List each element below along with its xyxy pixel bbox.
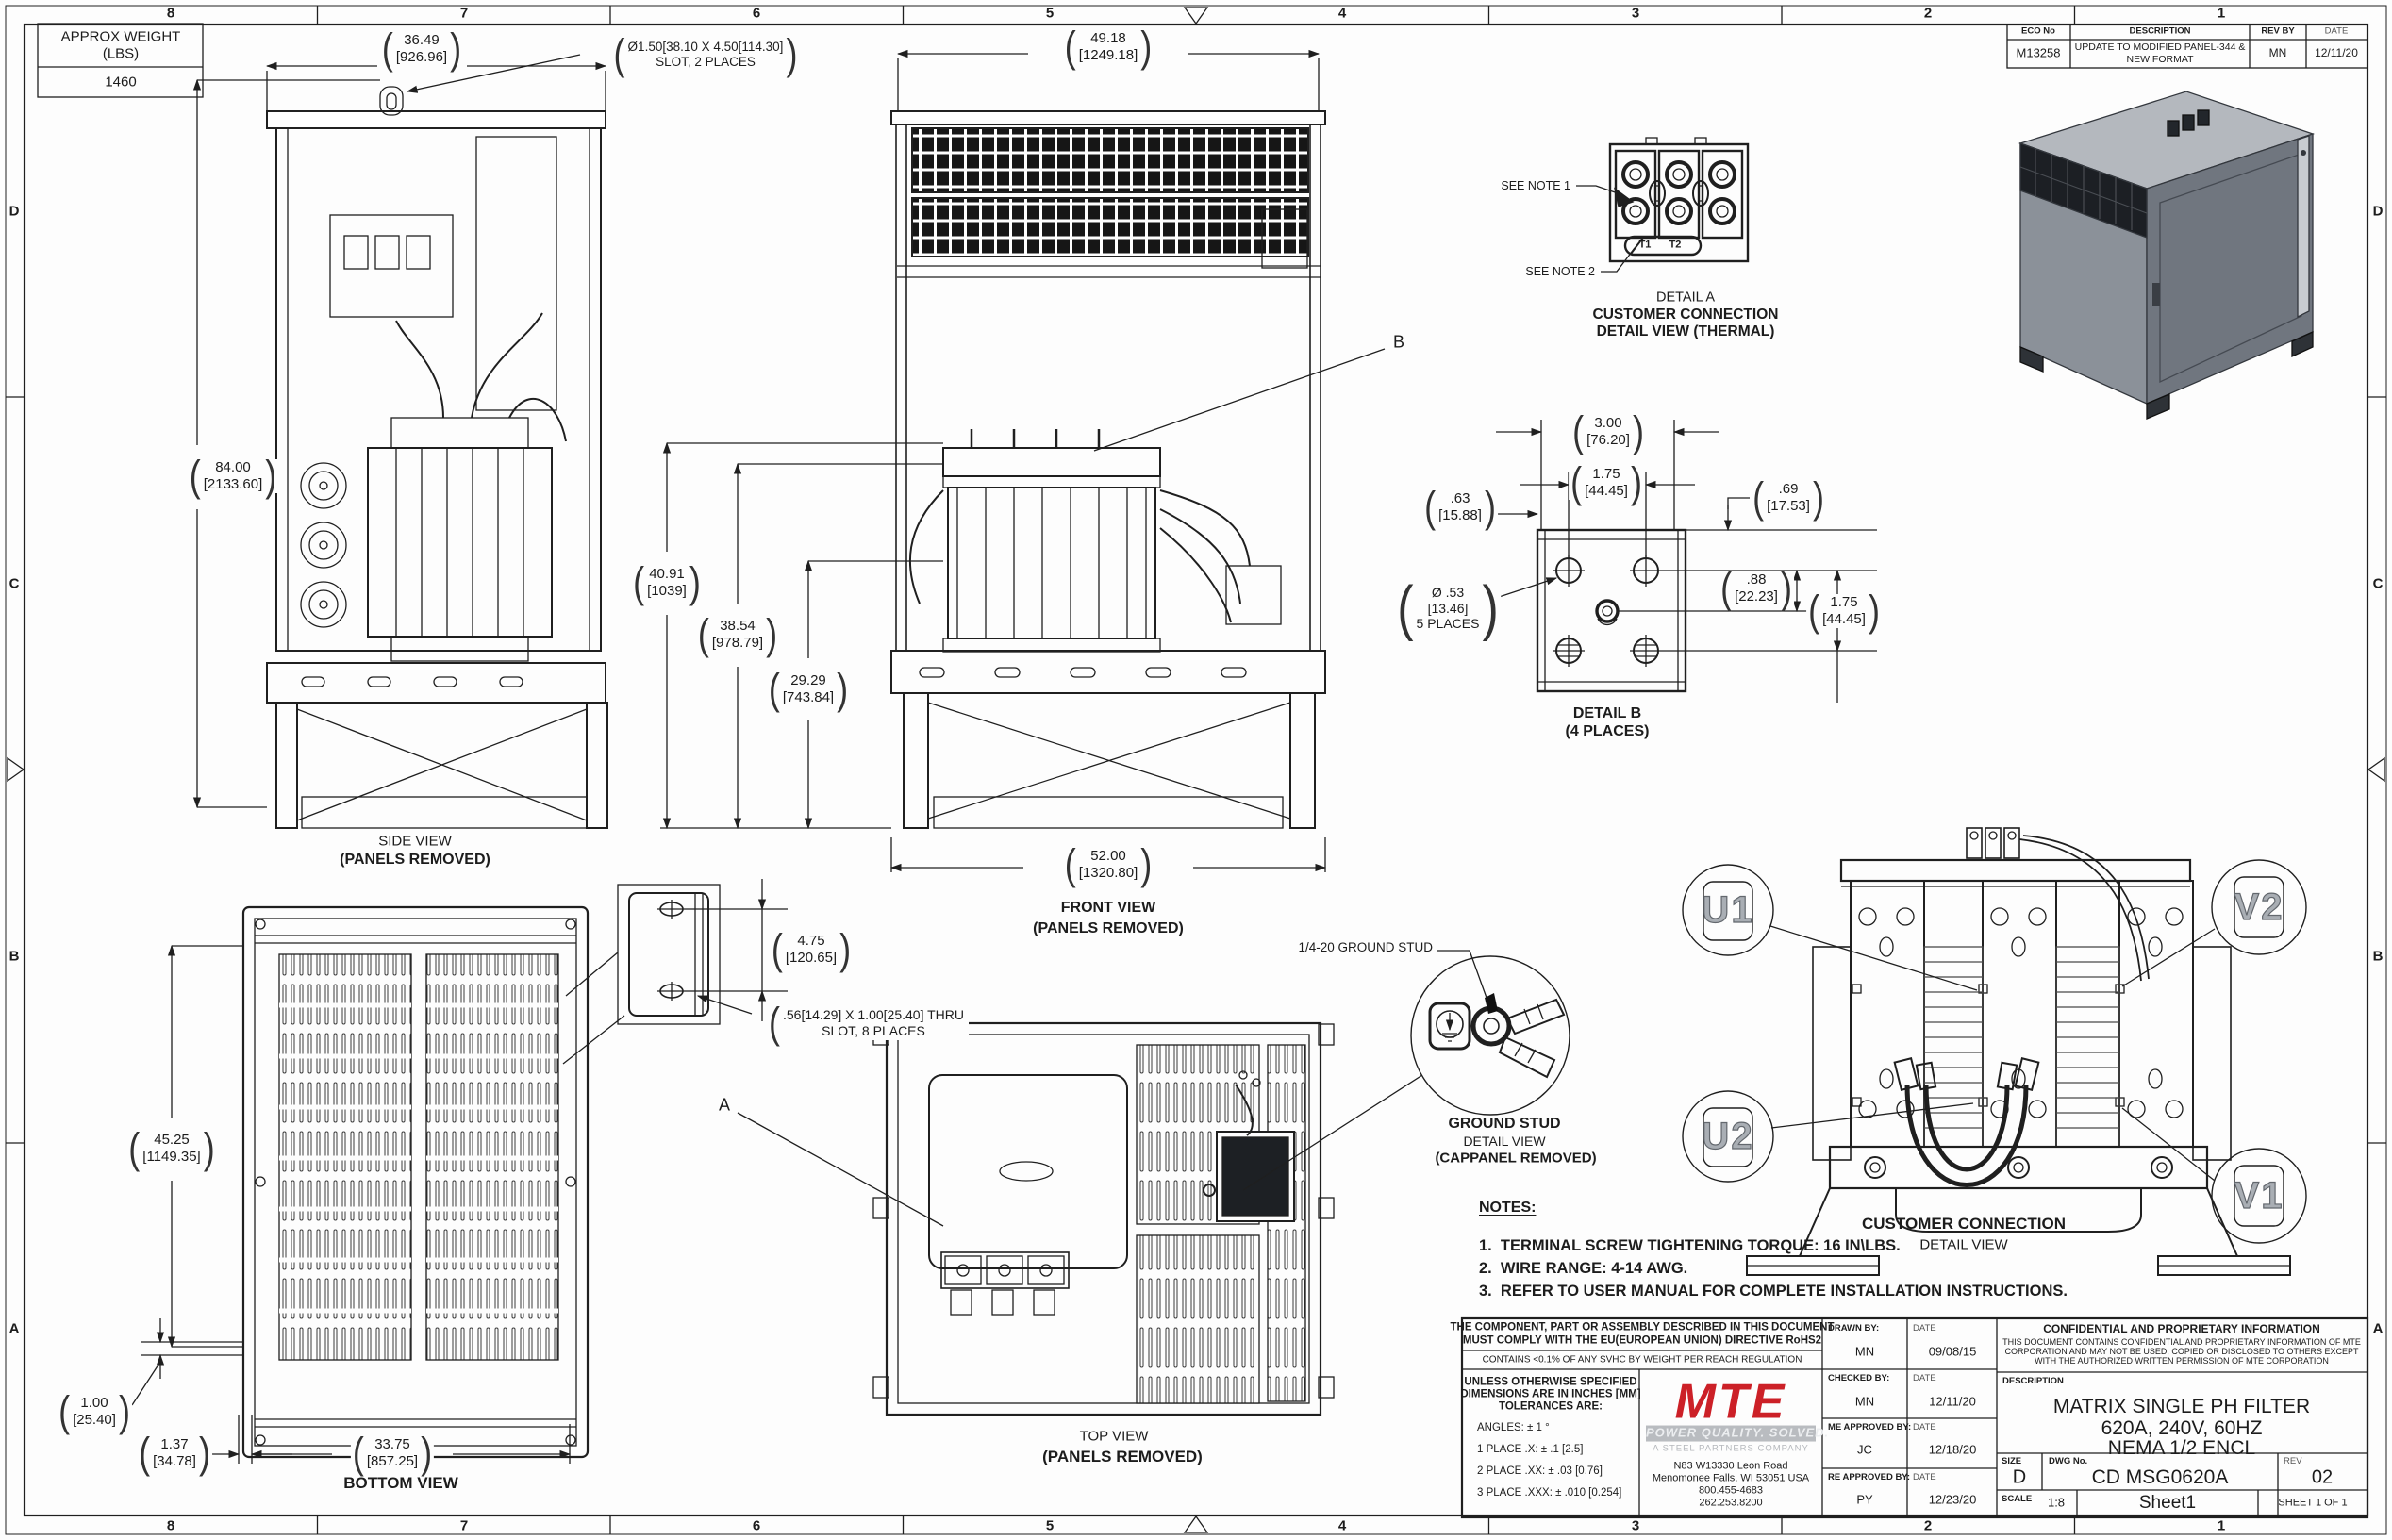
balloon-v1-label: V1: [2234, 1174, 2284, 1217]
eco-description-2: NEW FORMAT: [2127, 54, 2194, 65]
zone-right-a: A: [2373, 1320, 2384, 1336]
confidential-heading: CONFIDENTIAL AND PROPRIETARY INFORMATION: [2043, 1323, 2320, 1336]
zone-bottom-1: 1: [2218, 1517, 2225, 1533]
side-view-subtitle: (PANELS REMOVED): [340, 852, 490, 869]
zone-bottom-3: 3: [1632, 1517, 1639, 1533]
bottom-view-title: BOTTOM VIEW: [343, 1474, 458, 1493]
detail-b-caption-2: (4 PLACES): [1566, 723, 1650, 740]
zone-right-d: D: [2373, 203, 2384, 219]
eco-header-desc: DESCRIPTION: [2130, 27, 2191, 38]
confidential-body-2: CORPORATION AND MAY NOT BE USED, COPIED …: [2004, 1347, 2358, 1356]
re-approved-value: PY: [1856, 1494, 1872, 1508]
zone-bottom-7: 7: [460, 1517, 468, 1533]
bracket-detail-drawing: [563, 879, 788, 1064]
front-view-subtitle: (PANELS REMOVED): [1033, 920, 1184, 937]
me-approved-label: ME APPROVED BY:: [1828, 1423, 1911, 1433]
dim-front-h1: ( 40.91[1039] ): [631, 566, 703, 600]
customer-connection-caption-2: DETAIL VIEW: [1919, 1236, 2007, 1252]
customer-connection-caption-1: CUSTOMER CONNECTION: [1862, 1215, 2066, 1234]
confidential-body-1: THIS DOCUMENT CONTAINS CONFIDENTIAL AND …: [2002, 1337, 2361, 1347]
dim-detail-b-right1: ( .69[17.53] ): [1751, 481, 1826, 515]
ground-stud-caption-2: DETAIL VIEW: [1463, 1134, 1545, 1149]
ground-stud-lug-icon: [1473, 993, 1564, 1077]
me-date-label: DATE: [1913, 1423, 1936, 1433]
zone-top-5: 5: [1046, 5, 1054, 21]
zone-right-c: C: [2373, 575, 2384, 591]
dim-front-h3: ( 29.29[743.84] ): [767, 672, 850, 706]
checked-date-value: 12/11/20: [1929, 1396, 1976, 1410]
re-date-value: 12/23/20: [1929, 1494, 1977, 1508]
zone-top-1: 1: [2218, 5, 2225, 21]
detail-b-drawing: [1479, 420, 1877, 703]
eco-header-date: DATE: [2325, 27, 2349, 38]
dim-detail-b-right3: ( 1.75[44.45] ): [1806, 594, 1882, 628]
re-approved-label: RE APPROVED BY:: [1828, 1473, 1910, 1483]
zone-right-b: B: [2373, 948, 2384, 964]
eco-description-1: UPDATE TO MODIFIED PANEL-344 &: [2075, 41, 2246, 53]
dim-slot-note: ( Ø1.50[38.10 X 4.50[114.30]SLOT, 2 PLAC…: [612, 38, 800, 72]
mte-address-4: 262.253.8200: [1699, 1498, 1762, 1510]
bottom-view-drawing: [132, 907, 588, 1464]
mte-address-1: N83 W13330 Leon Road: [1673, 1461, 1787, 1473]
eco-header-no: ECO No: [2021, 27, 2055, 38]
description-label: DESCRIPTION: [2002, 1377, 2064, 1387]
tolerance-angles: ANGLES: ± 1 °: [1477, 1422, 1550, 1434]
eco-no: M13258: [2017, 47, 2061, 61]
zone-bottom-8: 8: [167, 1517, 174, 1533]
dim-detail-b-dia: ( Ø .53[13.46]5 PLACES ): [1395, 584, 1501, 633]
reach-statement: CONTAINS <0.1% OF ANY SVHC BY WEIGHT PER…: [1483, 1354, 1802, 1366]
checked-date-label: DATE: [1913, 1374, 1936, 1384]
re-date-label: DATE: [1913, 1473, 1936, 1483]
me-date-value: 12/18/20: [1929, 1444, 1977, 1458]
dim-front-width-top: ( 49.18[1249.18] ): [1063, 30, 1154, 64]
dim-detail-b-w1: ( 3.00[76.20] ): [1570, 415, 1646, 449]
scale-value: 1:8: [2048, 1497, 2065, 1511]
note-item-1: 1. TERMINAL SCREW TIGHTENING TORQUE: 16 …: [1479, 1237, 1901, 1255]
tolerance-head-1: UNLESS OTHERWISE SPECIFIED: [1464, 1376, 1636, 1388]
dim-bottom-off1: ( 1.00[25.40] ): [57, 1395, 132, 1429]
zone-bottom-6: 6: [753, 1517, 760, 1533]
ground-stud-detail-drawing: [1411, 951, 1570, 1115]
pointer-a: A: [716, 1096, 733, 1116]
sheet-name: Sheet1: [2139, 1493, 2196, 1514]
zone-left-a: A: [9, 1320, 20, 1336]
eco-header-revby: REV BY: [2261, 27, 2294, 38]
balloon-u2-label: U2: [1702, 1115, 1753, 1158]
zone-bottom-5: 5: [1046, 1517, 1054, 1533]
mte-address-3: 800.455-4683: [1699, 1485, 1763, 1498]
see-note-2-label: SEE NOTE 2: [1522, 265, 1598, 278]
tolerance-head-2: DIMENSIONS ARE IN INCHES [MM]: [1460, 1388, 1640, 1400]
dim-bracket-pitch: ( 4.75[120.65] ): [770, 933, 853, 967]
zone-top-2: 2: [1924, 5, 1932, 21]
dim-bottom-height: ( 45.25[1149.35] ): [126, 1132, 216, 1166]
terminal-t1-label: T1: [1639, 240, 1652, 252]
zone-bottom-2: 2: [1924, 1517, 1932, 1533]
tolerance-2place: 2 PLACE .XX: ± .03 [0.76]: [1477, 1465, 1603, 1478]
weight-table-title-1: APPROX WEIGHT: [61, 28, 181, 44]
dim-front-width-bottom: ( 52.00[1320.80] ): [1063, 848, 1154, 882]
dim-detail-b-right2: ( .88[22.23] ): [1719, 571, 1794, 605]
drawing-sheet: 8 7 6 5 4 3 2 1 8 7 6 5 4 3 2 1 D C B A …: [0, 0, 2392, 1540]
drawn-date-value: 09/08/15: [1929, 1346, 1977, 1360]
dim-side-height: ( 84.00[2133.60] ): [188, 459, 279, 493]
detail-a-drawing: [1576, 138, 1748, 272]
pointer-b: B: [1390, 333, 1407, 353]
scale-label: SCALE: [2002, 1495, 2032, 1505]
zone-top-8: 8: [167, 5, 174, 21]
zone-top-6: 6: [753, 5, 760, 21]
confidential-body-3: WITH THE AUTHORIZED WRITTEN PERMISSION O…: [2035, 1356, 2329, 1366]
terminal-t2-label: T2: [1669, 240, 1682, 252]
rohs-line2: MUST COMPLY WITH THE EU(EUROPEAN UNION) …: [1463, 1334, 1821, 1347]
weight-table-value: 1460: [105, 74, 136, 90]
zone-bottom-4: 4: [1338, 1517, 1346, 1533]
notes-heading: NOTES:: [1479, 1200, 1536, 1217]
dim-side-width: ( 36.49[926.96] ): [380, 32, 463, 66]
drawing-lineart: [0, 0, 2392, 1540]
eco-date: 12/11/20: [2315, 47, 2358, 60]
me-approved-value: JC: [1857, 1444, 1872, 1458]
detail-a-caption-3: DETAIL VIEW (THERMAL): [1597, 323, 1775, 340]
side-view-title: SIDE VIEW: [378, 833, 452, 849]
note-item-2: 2. WIRE RANGE: 4-14 AWG.: [1479, 1260, 1687, 1278]
ground-symbol-icon: [1430, 1003, 1470, 1049]
zone-top-4: 4: [1338, 5, 1346, 21]
ground-stud-caption-3: (CAPPANEL REMOVED): [1435, 1150, 1596, 1166]
description-line-3: NEMA 1/2 ENCL: [2108, 1437, 2255, 1460]
dim-front-h2: ( 38.54[978.79] ): [696, 618, 779, 652]
mte-address-2: Menomonee Falls, WI 53051 USA: [1653, 1473, 1809, 1485]
top-view-subtitle: (PANELS REMOVED): [1042, 1448, 1203, 1466]
mte-sub-brand: A STEEL PARTNERS COMPANY: [1653, 1445, 1809, 1455]
zone-top-7: 7: [460, 5, 468, 21]
rev-value: 02: [2312, 1467, 2333, 1489]
tolerance-3place: 3 PLACE .XXX: ± .010 [0.254]: [1477, 1487, 1621, 1499]
zone-left-b: B: [9, 948, 20, 964]
drawn-by-label: DRAWN BY:: [1828, 1324, 1879, 1334]
zone-left-c: C: [9, 575, 20, 591]
dim-bracket-slot: ( .56[14.29] X 1.00[25.40] THRUSLOT, 8 P…: [767, 1006, 969, 1040]
detail-b-caption-1: DETAIL B: [1573, 705, 1641, 722]
weight-table-title-2: (LBS): [103, 45, 139, 61]
size-value: D: [2013, 1467, 2026, 1489]
size-label: SIZE: [2002, 1457, 2021, 1467]
dim-bottom-width: ( 33.75[857.25] ): [351, 1436, 434, 1470]
mte-tagline: POWER QUALITY. SOLVED.: [1646, 1426, 1816, 1442]
sheet-of: SHEET 1 OF 1: [2278, 1498, 2347, 1510]
rohs-line1: THE COMPONENT, PART OR ASSEMBLY DESCRIBE…: [1450, 1321, 1834, 1333]
isometric-view-drawing: [2020, 91, 2313, 419]
see-note-1-label: SEE NOTE 1: [1498, 179, 1573, 192]
dim-bottom-off2: ( 1.37[34.78] ): [137, 1436, 212, 1470]
drawn-date-label: DATE: [1913, 1324, 1936, 1334]
tolerance-head-3: TOLERANCES ARE:: [1499, 1400, 1603, 1413]
detail-a-caption-1: DETAIL A: [1656, 290, 1715, 306]
ground-stud-callout: 1/4-20 GROUND STUD: [1295, 940, 1436, 955]
top-view-drawing: [738, 1023, 1422, 1415]
checked-by-label: CHECKED BY:: [1828, 1374, 1889, 1384]
description-line-1: MATRIX SINGLE PH FILTER: [2053, 1396, 2310, 1418]
checked-by-value: MN: [1855, 1396, 1874, 1410]
dim-detail-b-w2: ( 1.75[44.45] ): [1569, 466, 1644, 500]
dwg-no-value: CD MSG0620A: [2092, 1466, 2229, 1489]
dim-detail-b-left: ( .63[15.88] ): [1422, 490, 1498, 524]
balloon-u1-label: U1: [1702, 888, 1753, 932]
tolerance-1place: 1 PLACE .X: ± .1 [2.5]: [1477, 1444, 1583, 1456]
customer-connection-drawing: [1683, 828, 2306, 1275]
front-view-drawing: [660, 54, 1385, 872]
ground-stud-caption-1: GROUND STUD: [1448, 1116, 1560, 1133]
note-item-3: 3. REFER TO USER MANUAL FOR COMPLETE INS…: [1479, 1283, 2068, 1300]
mte-logo: MTE: [1675, 1381, 1787, 1425]
balloon-v2-label: V2: [2234, 886, 2284, 929]
drawn-by-value: MN: [1855, 1346, 1874, 1360]
side-view-drawing: [197, 55, 607, 828]
top-view-title: TOP VIEW: [1080, 1428, 1149, 1444]
detail-a-caption-2: CUSTOMER CONNECTION: [1593, 306, 1779, 323]
front-view-title: FRONT VIEW: [1061, 900, 1155, 917]
zone-left-d: D: [9, 203, 20, 219]
rev-label: REV: [2284, 1457, 2302, 1467]
eco-revby: MN: [2269, 47, 2287, 60]
zone-top-3: 3: [1632, 5, 1639, 21]
dwg-no-label: DWG No.: [2049, 1457, 2087, 1467]
